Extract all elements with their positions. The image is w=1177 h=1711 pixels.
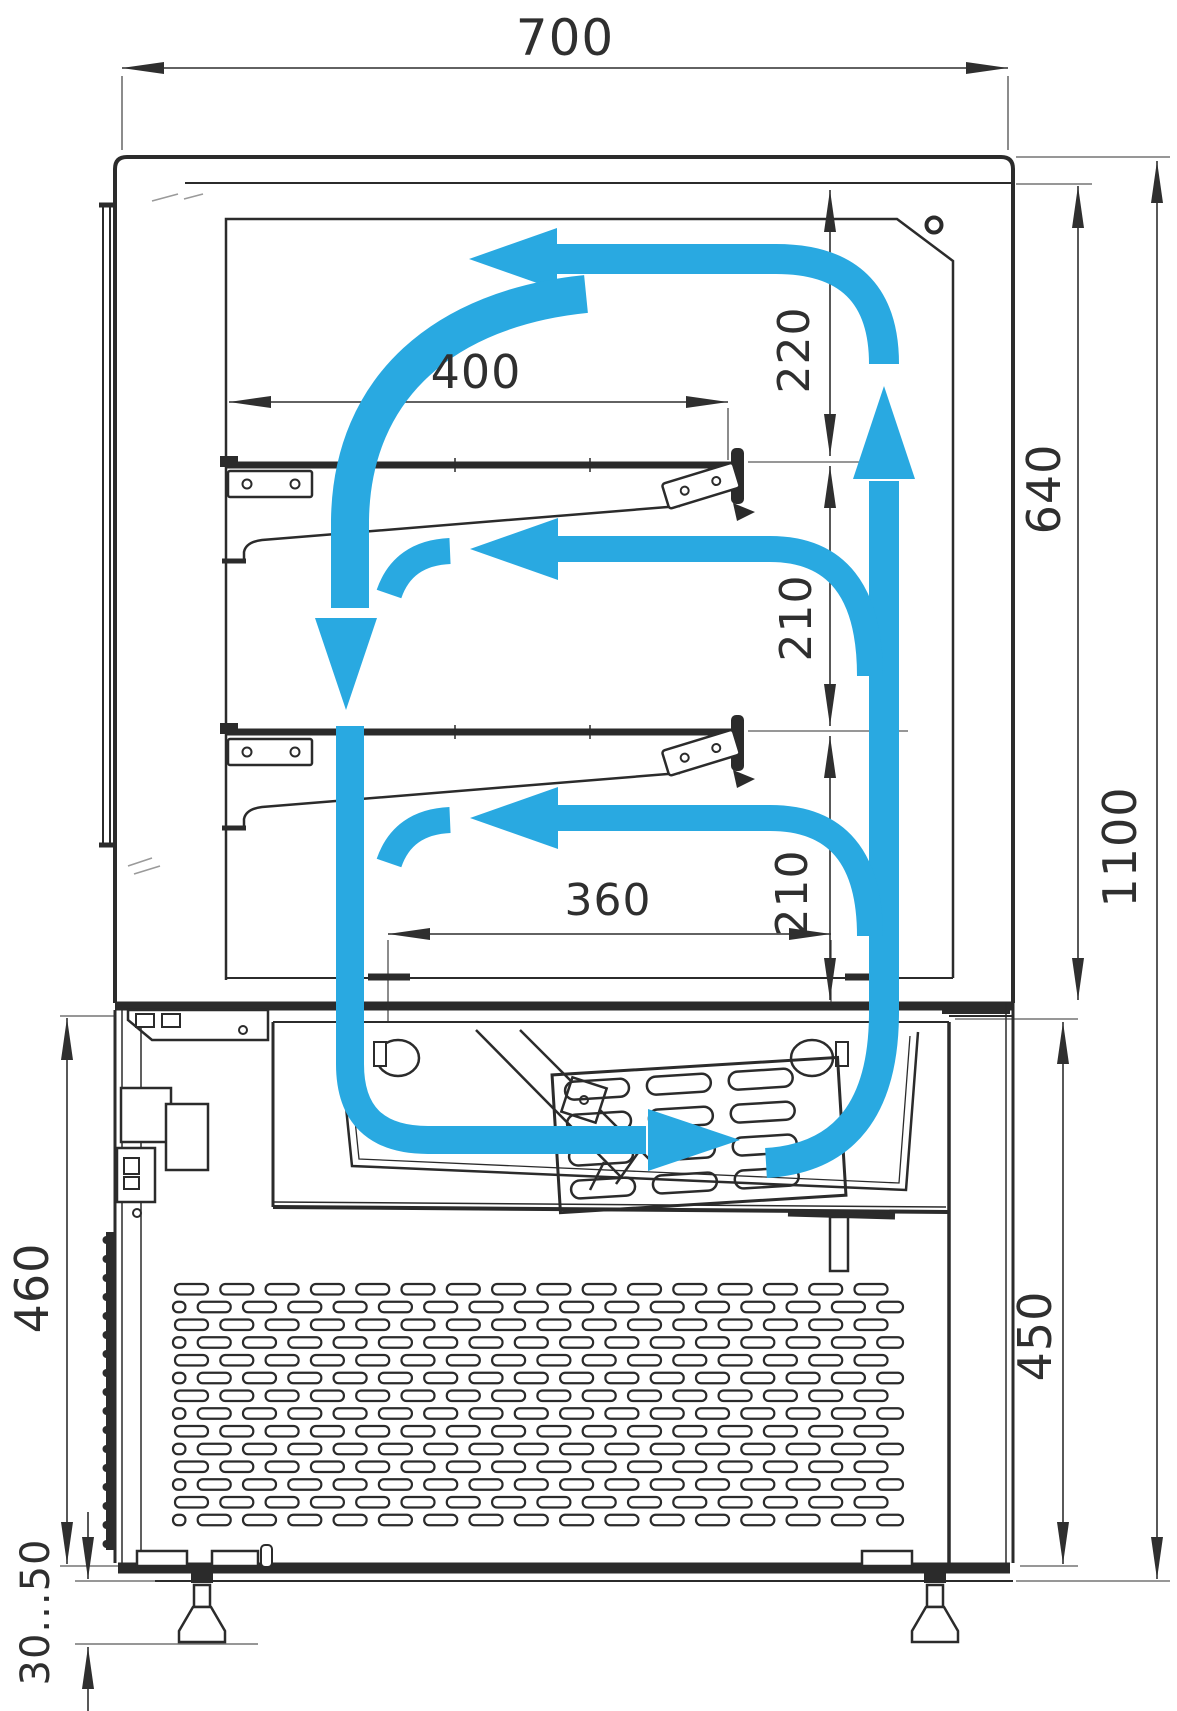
airflow-up-arrow-icon xyxy=(853,386,915,479)
dim-shelf-gap-lower: 210 xyxy=(771,850,815,937)
dim-base-height-left: 460 xyxy=(9,1243,55,1334)
airflow-right-arrow-icon xyxy=(648,1109,740,1171)
airflow-left-arrow-icon xyxy=(470,787,558,849)
support-leg xyxy=(830,1217,848,1271)
dim-feet-range: 30...50 xyxy=(16,1539,56,1686)
airflow-left-arrow-icon xyxy=(469,228,557,290)
airflow-down-arrow-icon xyxy=(315,618,377,710)
dim-inner-height: 640 xyxy=(1021,444,1067,535)
screw-hole-icon xyxy=(927,218,942,233)
dim-overall-width: 700 xyxy=(516,13,614,63)
section-drawing xyxy=(0,0,1177,1711)
compressor-assembly xyxy=(117,1088,208,1217)
dim-overall-height: 1100 xyxy=(1097,786,1143,907)
dim-shelf-gap-upper: 210 xyxy=(775,575,819,662)
vent-grille xyxy=(173,1284,903,1525)
airflow-left-arrow-icon xyxy=(470,518,558,580)
dim-top-clearance: 220 xyxy=(773,307,817,394)
hinge-plate xyxy=(128,1010,268,1040)
dim-base-height-right: 450 xyxy=(1012,1291,1058,1382)
drawing-canvas: 700 400 360 220 210 210 640 1100 450 460… xyxy=(0,0,1177,1711)
dim-shelf-depth: 400 xyxy=(431,349,522,395)
airflow-arrows xyxy=(315,228,915,1171)
dim-air-outlet-width: 360 xyxy=(565,879,652,923)
